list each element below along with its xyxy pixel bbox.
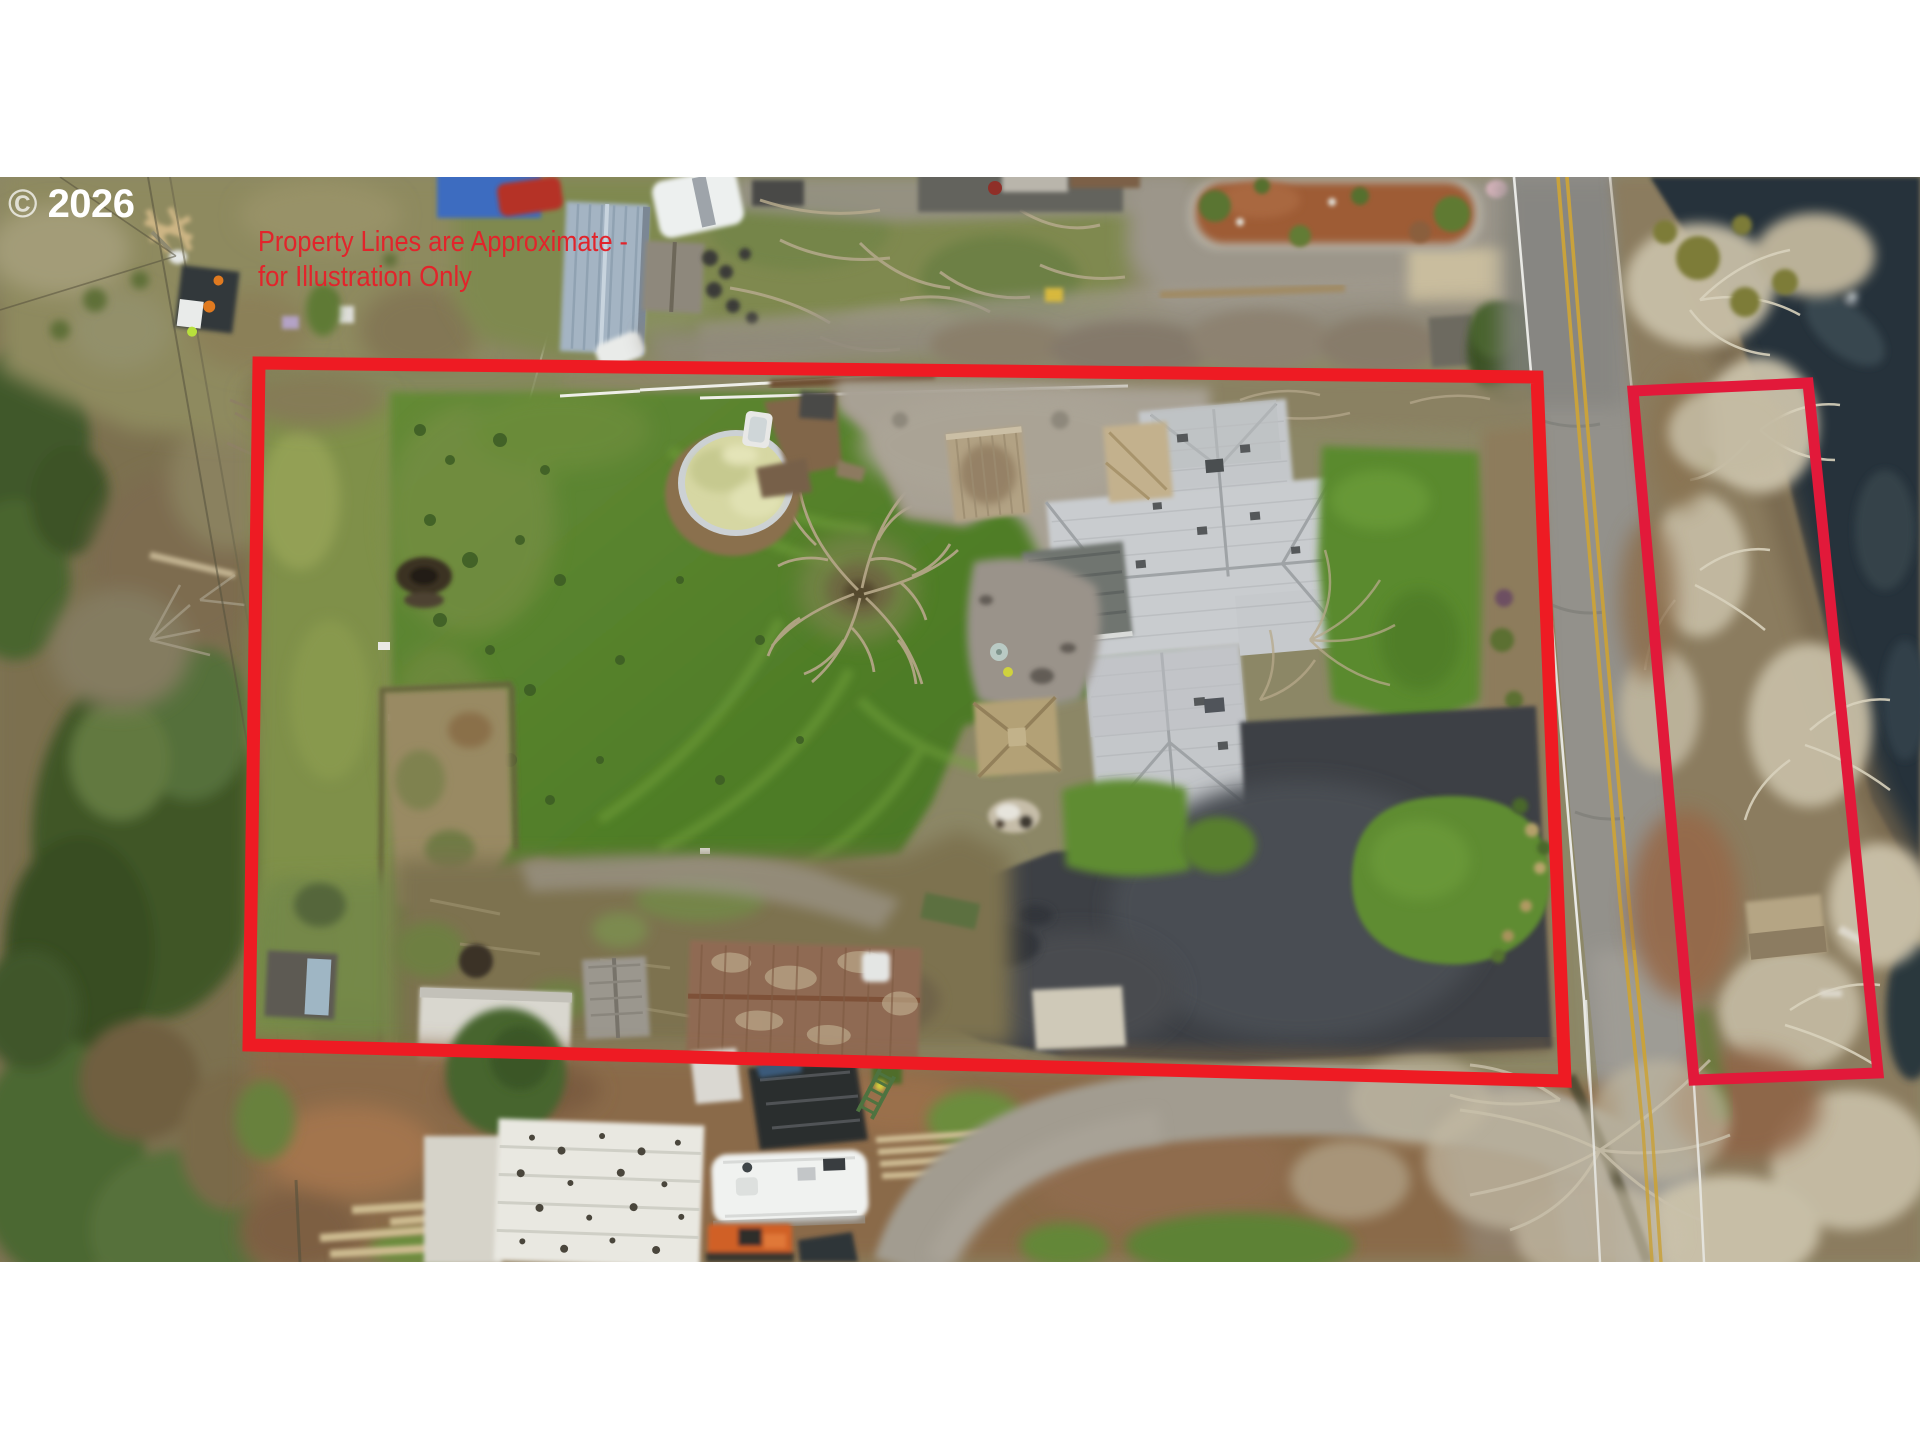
svg-text:© 2026: © 2026 xyxy=(8,182,135,226)
svg-text:for Illustration Only: for Illustration Only xyxy=(258,261,472,293)
svg-text:Property Lines are Approximate: Property Lines are Approximate - xyxy=(258,226,628,258)
